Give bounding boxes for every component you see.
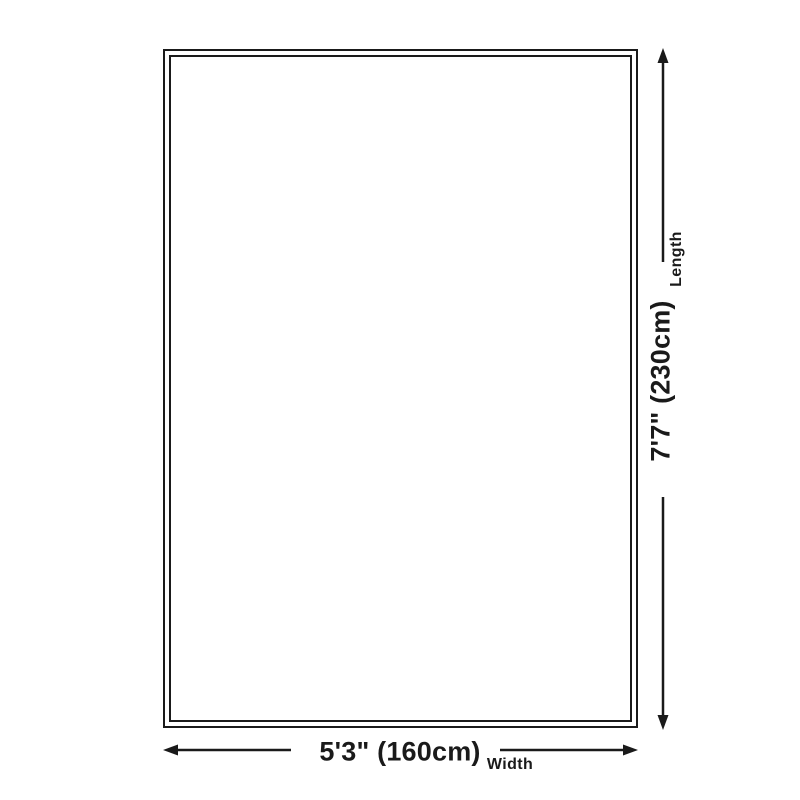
width-dimension-label: Width [487, 756, 533, 774]
length-dimension-label: Length [668, 231, 686, 287]
rug-outline-outer [163, 49, 638, 728]
length-dimension-value: 7'7" (230cm) [646, 300, 677, 461]
rug-outline-inner [169, 55, 632, 722]
width-dimension-value: 5'3" (160cm) [319, 737, 480, 768]
dimension-diagram: 5'3" (160cm) Width 7'7" (230cm) Length [0, 0, 800, 800]
